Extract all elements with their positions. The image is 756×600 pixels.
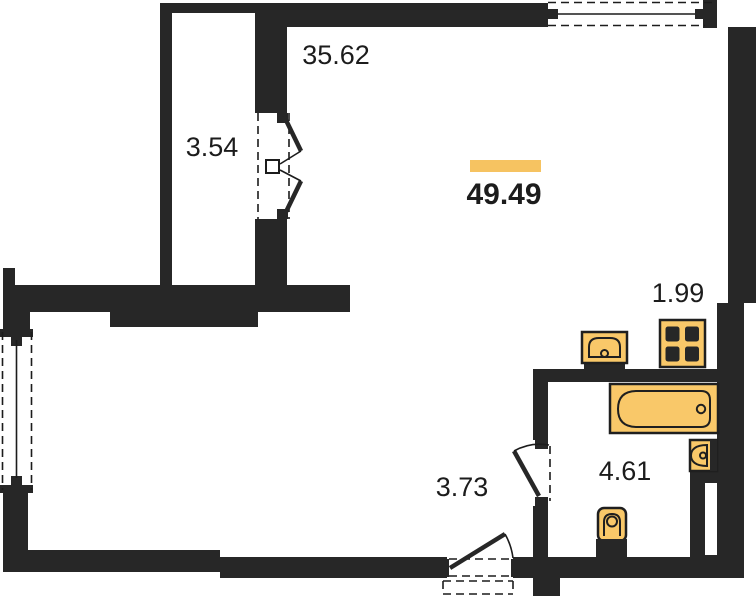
room-label-living: 35.62: [302, 40, 370, 70]
entrance-door-bracket-left: [439, 559, 449, 577]
wall-mid-band: [3, 285, 350, 312]
walls: [3, 0, 756, 596]
wall-balcony-left: [160, 3, 172, 287]
bathtub: [610, 384, 718, 433]
wall-bathroom-top: [533, 369, 744, 382]
wall-left-below-window: [3, 493, 28, 552]
bathroom-door-bracket-bottom: [535, 497, 548, 506]
wall-left-above-window: [3, 312, 30, 329]
wall-mid-chunk: [110, 312, 258, 327]
wall-balcony-right-upper: [255, 3, 287, 110]
stove-burner-2: [685, 327, 699, 342]
window-left: [0, 329, 33, 493]
room-label-kitchen-niche: 1.99: [652, 278, 705, 308]
washbasin: [690, 440, 717, 471]
room-label-balcony: 3.54: [186, 132, 239, 162]
kitchen-sink: [582, 332, 627, 370]
stove-burner-4: [685, 347, 699, 362]
wall-bottom-right-b: [513, 557, 744, 578]
window-left-sill-top: [0, 329, 33, 337]
window-top-end-post: [703, 0, 717, 28]
toilet-bowl: [598, 508, 626, 541]
duct-shaft-slot: [705, 483, 717, 555]
bathroom-door-leaf: [514, 451, 539, 496]
french-door-swing-lower: [280, 170, 301, 181]
wall-left-stub-upper: [3, 268, 15, 312]
window-top: [548, 3, 717, 26]
wall-right-lower: [717, 303, 744, 578]
total-area-label: 49.49: [466, 178, 541, 211]
bathroom-door: [514, 440, 550, 506]
entrance-door-arc: [505, 534, 513, 558]
wall-living-top: [287, 3, 548, 27]
room-label-hallway: 3.73: [436, 472, 489, 502]
entrance-door: [439, 534, 521, 594]
floor-plan: 49.49 35.62 3.54 1.99 3.73 4.61: [0, 0, 756, 600]
stove-burner-1: [666, 327, 680, 342]
window-top-bracket-right: [695, 9, 705, 19]
total-area-marker: [470, 160, 541, 172]
wall-bathroom-left-lower: [533, 506, 548, 557]
french-door-post-bottom: [255, 219, 287, 224]
window-top-bracket-left: [548, 9, 558, 19]
stove-burner-3: [666, 347, 680, 362]
wall-bottom-right-a: [220, 557, 447, 578]
french-door-post-top: [255, 108, 287, 113]
entrance-door-leaf: [450, 534, 505, 568]
stove: [660, 320, 705, 367]
wall-right-upper: [728, 27, 756, 303]
wall-bathroom-left-upper: [533, 382, 548, 440]
french-door-handle: [266, 160, 279, 173]
french-door-leaf-lower: [284, 181, 301, 216]
wall-entry-stub: [533, 578, 560, 596]
entrance-door-bracket-right: [511, 559, 521, 577]
toilet: [596, 508, 627, 557]
french-door: [255, 108, 301, 224]
french-door-swing-upper: [280, 151, 301, 164]
floor-plan-canvas: 49.49 35.62 3.54 1.99 3.73 4.61: [0, 0, 756, 600]
french-door-leaf-upper: [284, 116, 301, 151]
room-label-bathroom: 4.61: [599, 456, 652, 486]
wall-bottom-left: [3, 550, 220, 572]
washbasin-pedestal: [710, 440, 717, 471]
window-left-sill-bottom: [0, 485, 33, 493]
toilet-tank: [596, 539, 627, 557]
